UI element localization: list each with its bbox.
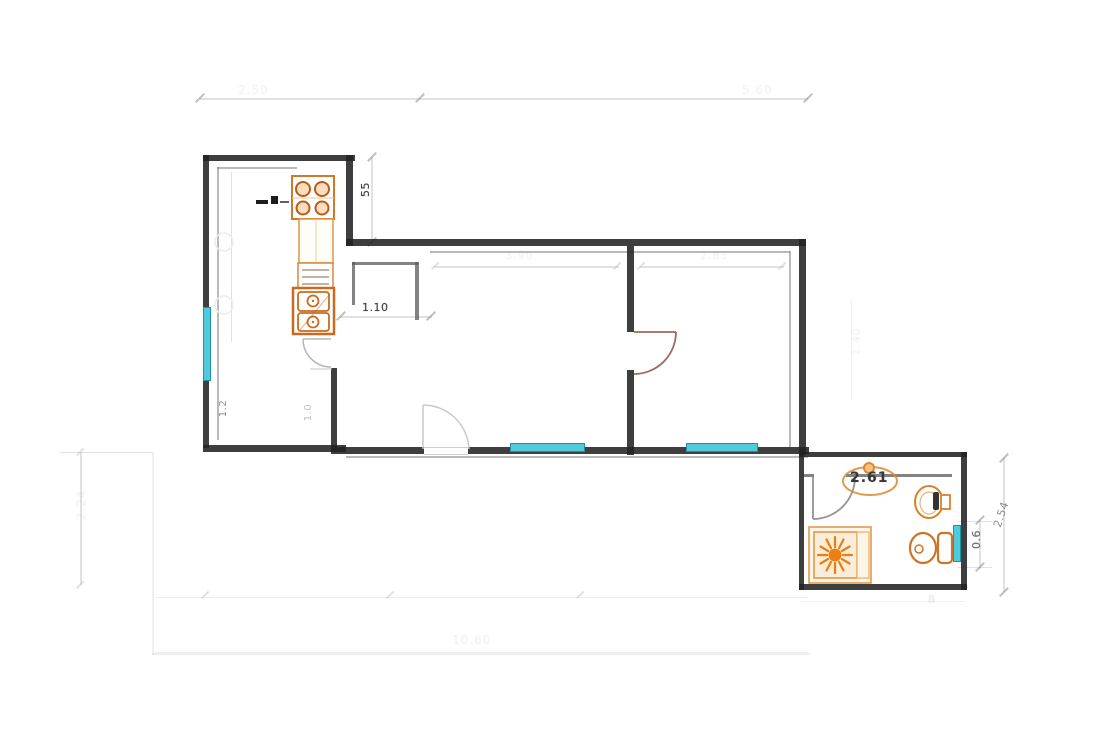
floor-plan: 55 1.10 2.61 0.6 2.54 1.2 1.0 2.50 5.60 … xyxy=(0,0,1109,741)
dim-label-living-faint: 3.90 xyxy=(505,249,534,262)
dim-label-bath-depth: 2.54 xyxy=(991,500,1012,529)
dim-label-kitchen-b: 1.0 xyxy=(303,404,314,421)
dim-label-kitchen-offset: 55 xyxy=(359,182,372,197)
dim-label-bedroom-faint: 2.85 xyxy=(700,249,729,262)
dim-label-bath-bottom-faint: 8 xyxy=(928,593,936,606)
dim-label-bottom-faint: 10.60 xyxy=(452,633,491,647)
dim-label-bath-window: 0.6 xyxy=(970,530,983,549)
dim-label-bedroom-right-faint: 1.40 xyxy=(850,327,863,356)
dim-label-top-left-faint: 2.50 xyxy=(238,83,269,97)
dim-label-top-right-faint: 5.60 xyxy=(742,83,773,97)
dim-label-kitchen-a: 1.2 xyxy=(218,400,229,417)
dim-label-bath-width: 2.61 xyxy=(850,470,889,486)
dim-label-left-faint: 2.24 xyxy=(74,490,88,521)
dim-label-hall-width: 1.10 xyxy=(362,301,389,314)
text-layer: 55 1.10 2.61 0.6 2.54 1.2 1.0 2.50 5.60 … xyxy=(0,0,1109,741)
